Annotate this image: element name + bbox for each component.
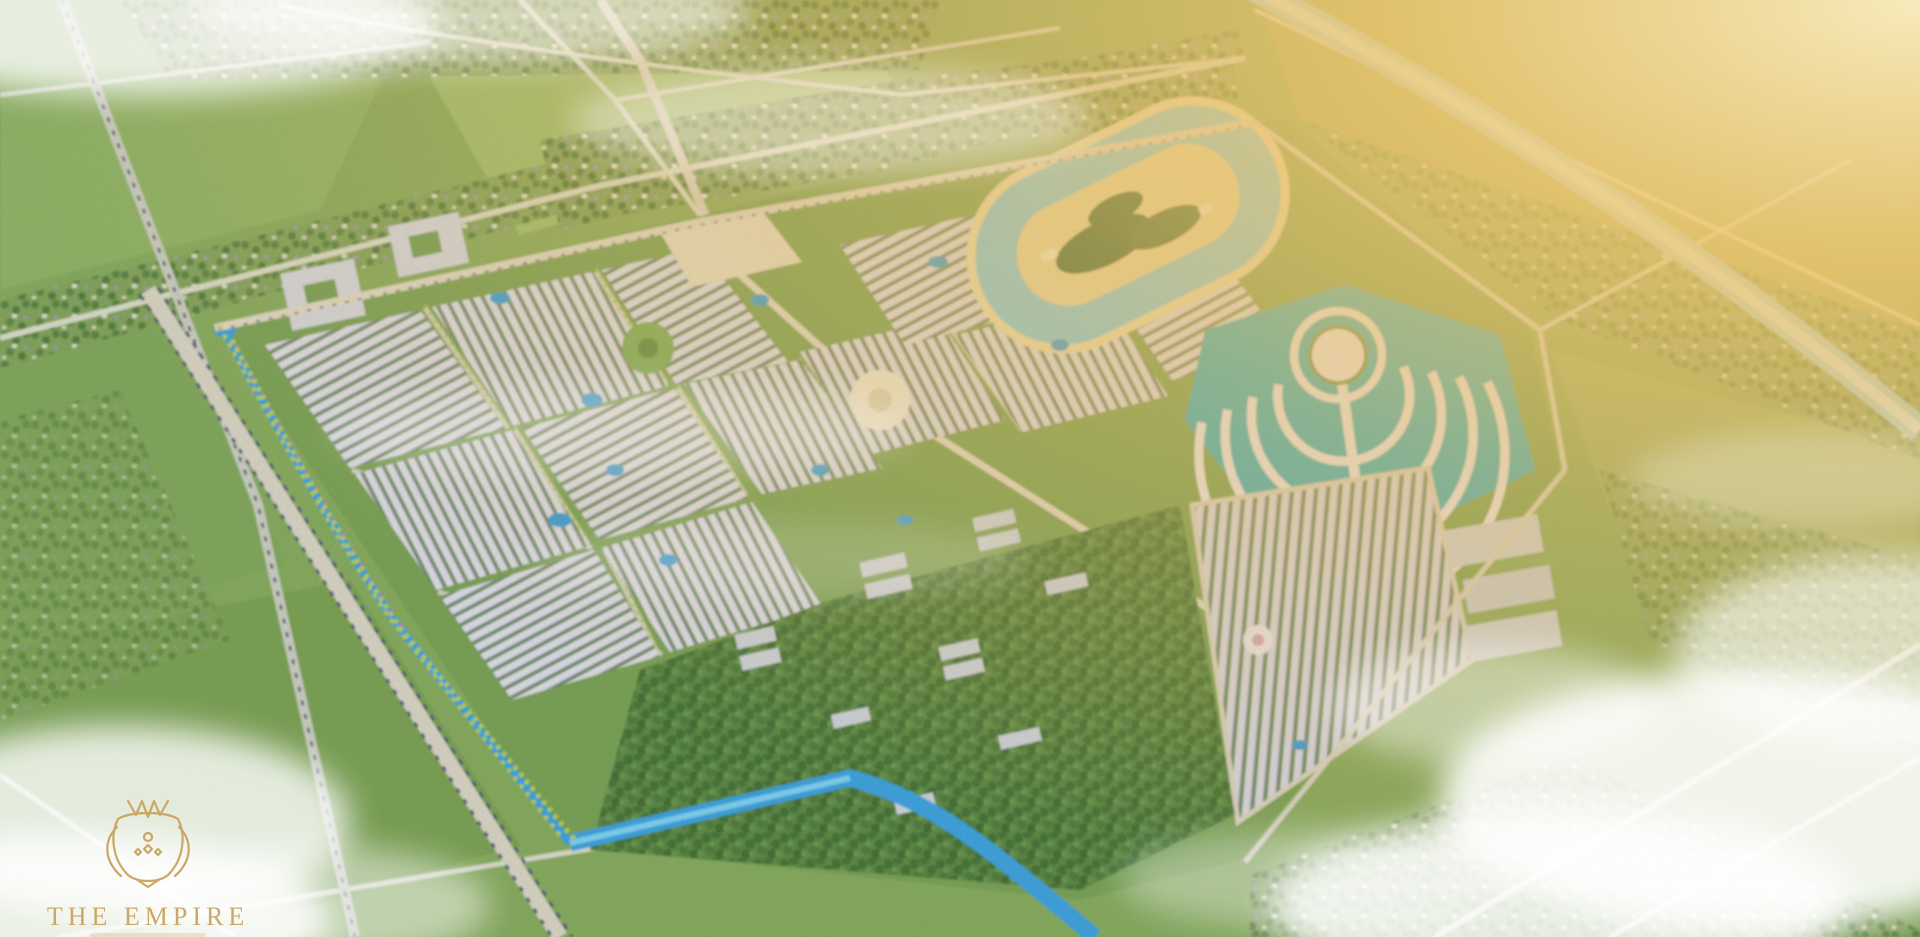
logo-tagline-cutoff <box>90 933 206 937</box>
cloud <box>1120 830 1520 930</box>
logo-title: THE EMPIRE <box>47 902 249 931</box>
cloud <box>330 382 910 478</box>
aerial-masterplan-render: THE EMPIRE <box>0 0 1920 937</box>
cloud <box>530 520 1030 600</box>
cloud <box>1330 645 1660 765</box>
cloud <box>570 65 1090 175</box>
